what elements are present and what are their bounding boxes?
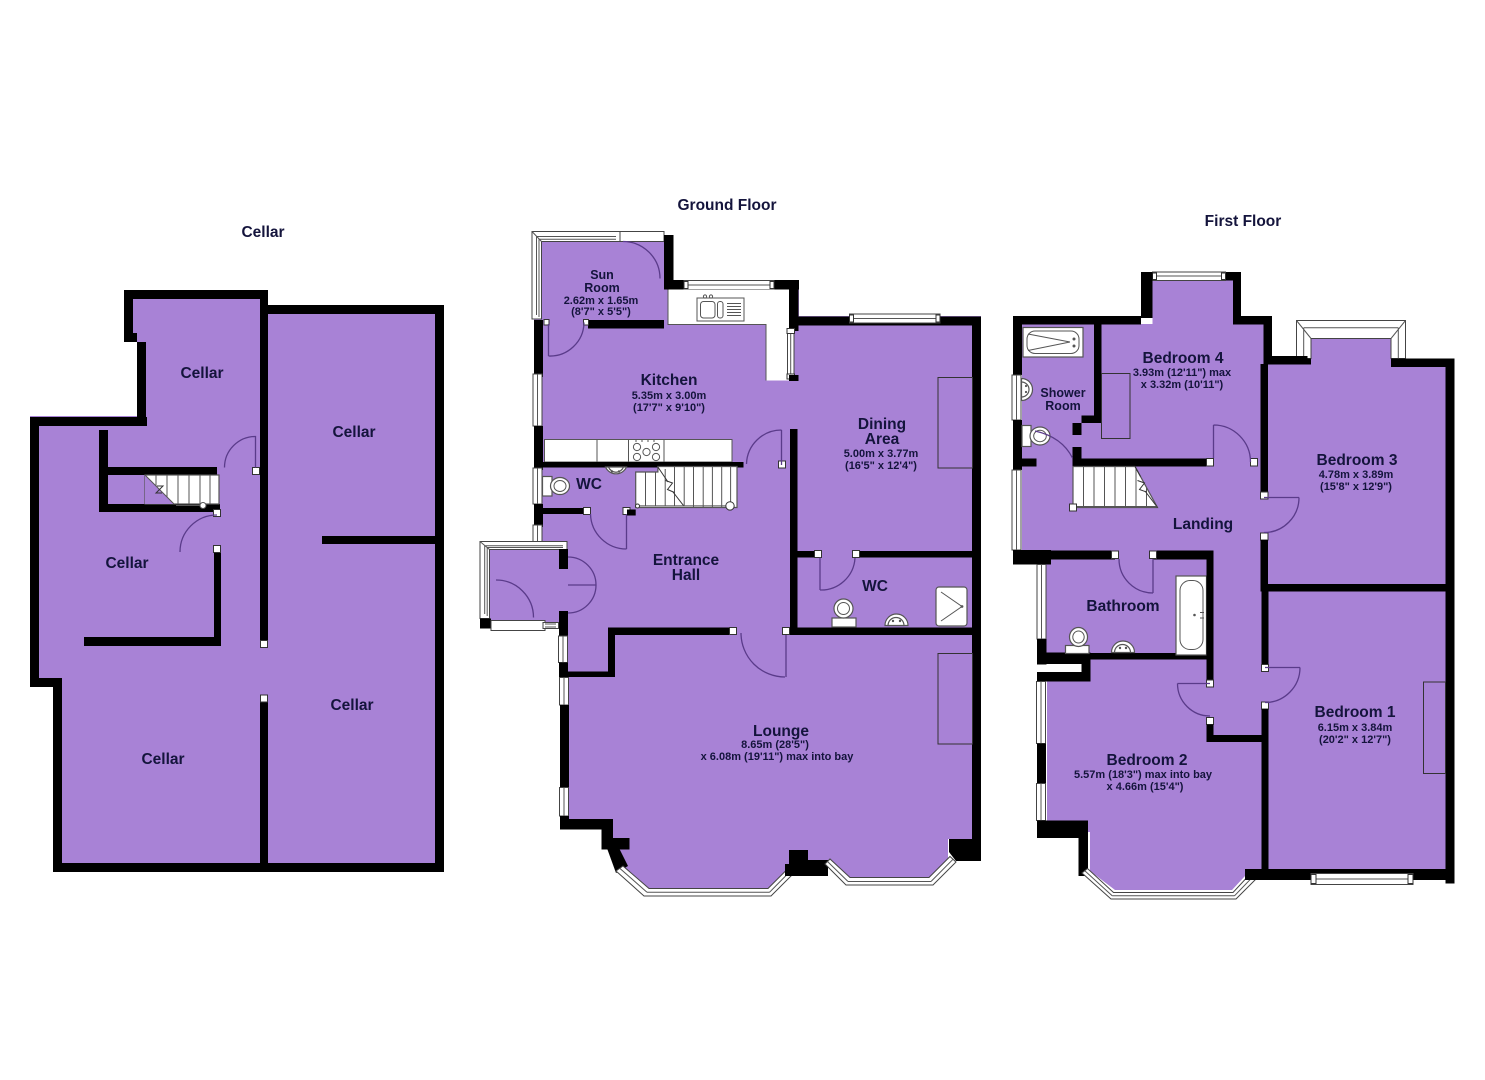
svg-text:Cellar: Cellar [241, 224, 284, 241]
svg-text:Bathroom: Bathroom [1086, 598, 1159, 615]
svg-text:Kitchen: Kitchen [641, 372, 698, 389]
svg-text:Bedroom 3: Bedroom 3 [1317, 452, 1398, 469]
svg-text:Room: Room [1045, 399, 1080, 413]
svg-text:Cellar: Cellar [332, 424, 375, 441]
svg-text:(16'5" x 12'4"): (16'5" x 12'4") [845, 460, 917, 472]
svg-text:WC: WC [576, 476, 602, 493]
svg-text:WC: WC [862, 578, 888, 595]
svg-text:5.00m x 3.77m: 5.00m x 3.77m [844, 448, 919, 460]
svg-text:(8'7" x 5'5"): (8'7" x 5'5") [571, 306, 631, 318]
svg-text:Hall: Hall [672, 567, 700, 584]
svg-text:Cellar: Cellar [330, 697, 373, 714]
svg-text:First Floor: First Floor [1205, 213, 1282, 230]
svg-text:5.35m x 3.00m: 5.35m x 3.00m [632, 390, 707, 402]
svg-text:Bedroom 2: Bedroom 2 [1107, 752, 1188, 769]
svg-text:(17'7" x 9'10"): (17'7" x 9'10") [633, 402, 705, 414]
svg-text:6.15m x 3.84m: 6.15m x 3.84m [1318, 722, 1393, 734]
svg-text:Bedroom 1: Bedroom 1 [1315, 704, 1396, 721]
svg-text:Landing: Landing [1173, 516, 1233, 533]
svg-text:Bedroom 4: Bedroom 4 [1143, 350, 1224, 367]
svg-text:Cellar: Cellar [141, 751, 184, 768]
svg-text:Lounge: Lounge [753, 723, 809, 740]
svg-text:x 4.66m (15'4"): x 4.66m (15'4") [1107, 781, 1184, 793]
svg-text:Ground Floor: Ground Floor [677, 197, 776, 214]
svg-text:4.78m x 3.89m: 4.78m x 3.89m [1319, 469, 1394, 481]
svg-text:Sun: Sun [590, 268, 614, 282]
svg-text:Cellar: Cellar [180, 365, 223, 382]
svg-text:8.65m (28'5"): 8.65m (28'5") [741, 739, 809, 751]
svg-text:3.93m (12'11") max: 3.93m (12'11") max [1133, 367, 1232, 379]
svg-text:5.57m (18'3") max into bay: 5.57m (18'3") max into bay [1074, 769, 1213, 781]
svg-text:x 6.08m (19'11") max into bay: x 6.08m (19'11") max into bay [701, 751, 855, 763]
svg-text:(20'2" x 12'7"): (20'2" x 12'7") [1319, 734, 1391, 746]
svg-text:(15'8" x 12'9"): (15'8" x 12'9") [1320, 481, 1392, 493]
svg-text:Room: Room [584, 281, 619, 295]
svg-text:Shower: Shower [1040, 386, 1085, 400]
svg-text:Area: Area [865, 431, 900, 448]
svg-text:Cellar: Cellar [105, 555, 148, 572]
svg-text:x 3.32m (10'11"): x 3.32m (10'11") [1141, 379, 1224, 391]
